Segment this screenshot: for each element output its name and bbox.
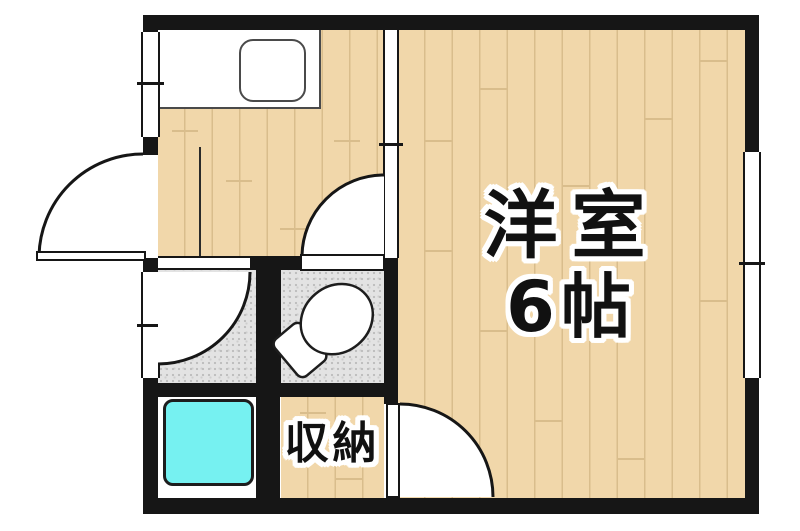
toilet-icon	[265, 269, 387, 386]
main-room-size-label: 6帖	[398, 268, 745, 346]
door-panel	[387, 404, 399, 497]
door-swing-arc-icon	[39, 154, 143, 258]
closet-label: 収納	[281, 419, 384, 469]
door-panel	[301, 255, 384, 270]
main-room-label: 洋室	[398, 186, 745, 266]
door-panel	[37, 252, 145, 260]
floor-plan: 洋室 6帖 収納	[0, 0, 800, 531]
